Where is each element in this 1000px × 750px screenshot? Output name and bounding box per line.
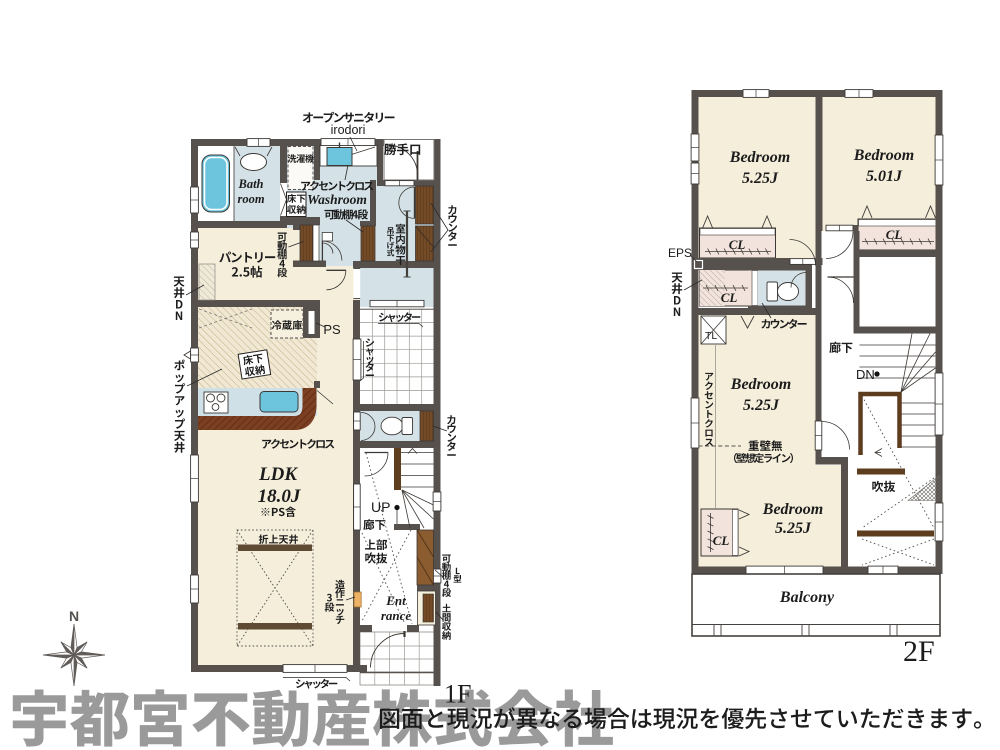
svg-text:TL: TL (705, 330, 717, 342)
svg-text:LDK: LDK (258, 464, 298, 485)
svg-text:Bedroom: Bedroom (729, 149, 790, 166)
svg-text:Bedroom: Bedroom (853, 147, 914, 164)
svg-text:DN: DN (856, 367, 875, 382)
svg-text:room: room (237, 192, 264, 206)
svg-text:PS: PS (323, 322, 341, 337)
svg-text:5.01J: 5.01J (866, 168, 903, 185)
svg-text:18.0J: 18.0J (258, 486, 301, 507)
svg-text:Bedroom: Bedroom (730, 376, 791, 393)
svg-text:irodori: irodori (331, 123, 366, 137)
svg-text:CL: CL (886, 227, 903, 242)
svg-text:2F: 2F (903, 635, 935, 668)
svg-text:Ent: Ent (385, 593, 406, 608)
svg-text:CL: CL (721, 290, 738, 305)
svg-text:Washroom: Washroom (307, 192, 367, 207)
svg-text:N: N (69, 608, 79, 624)
svg-text:5.25J: 5.25J (743, 397, 780, 414)
svg-text:rance: rance (381, 608, 412, 623)
svg-text:5.25J: 5.25J (742, 170, 779, 187)
svg-text:5.25J: 5.25J (775, 520, 812, 537)
svg-text:Bedroom: Bedroom (762, 501, 823, 518)
svg-text:CL: CL (729, 237, 746, 252)
svg-text:EPS: EPS (668, 246, 692, 260)
svg-text:1F: 1F (444, 680, 471, 709)
svg-text:Bath: Bath (237, 177, 263, 191)
svg-text:Balcony: Balcony (779, 589, 835, 606)
svg-text:CL: CL (713, 533, 730, 548)
